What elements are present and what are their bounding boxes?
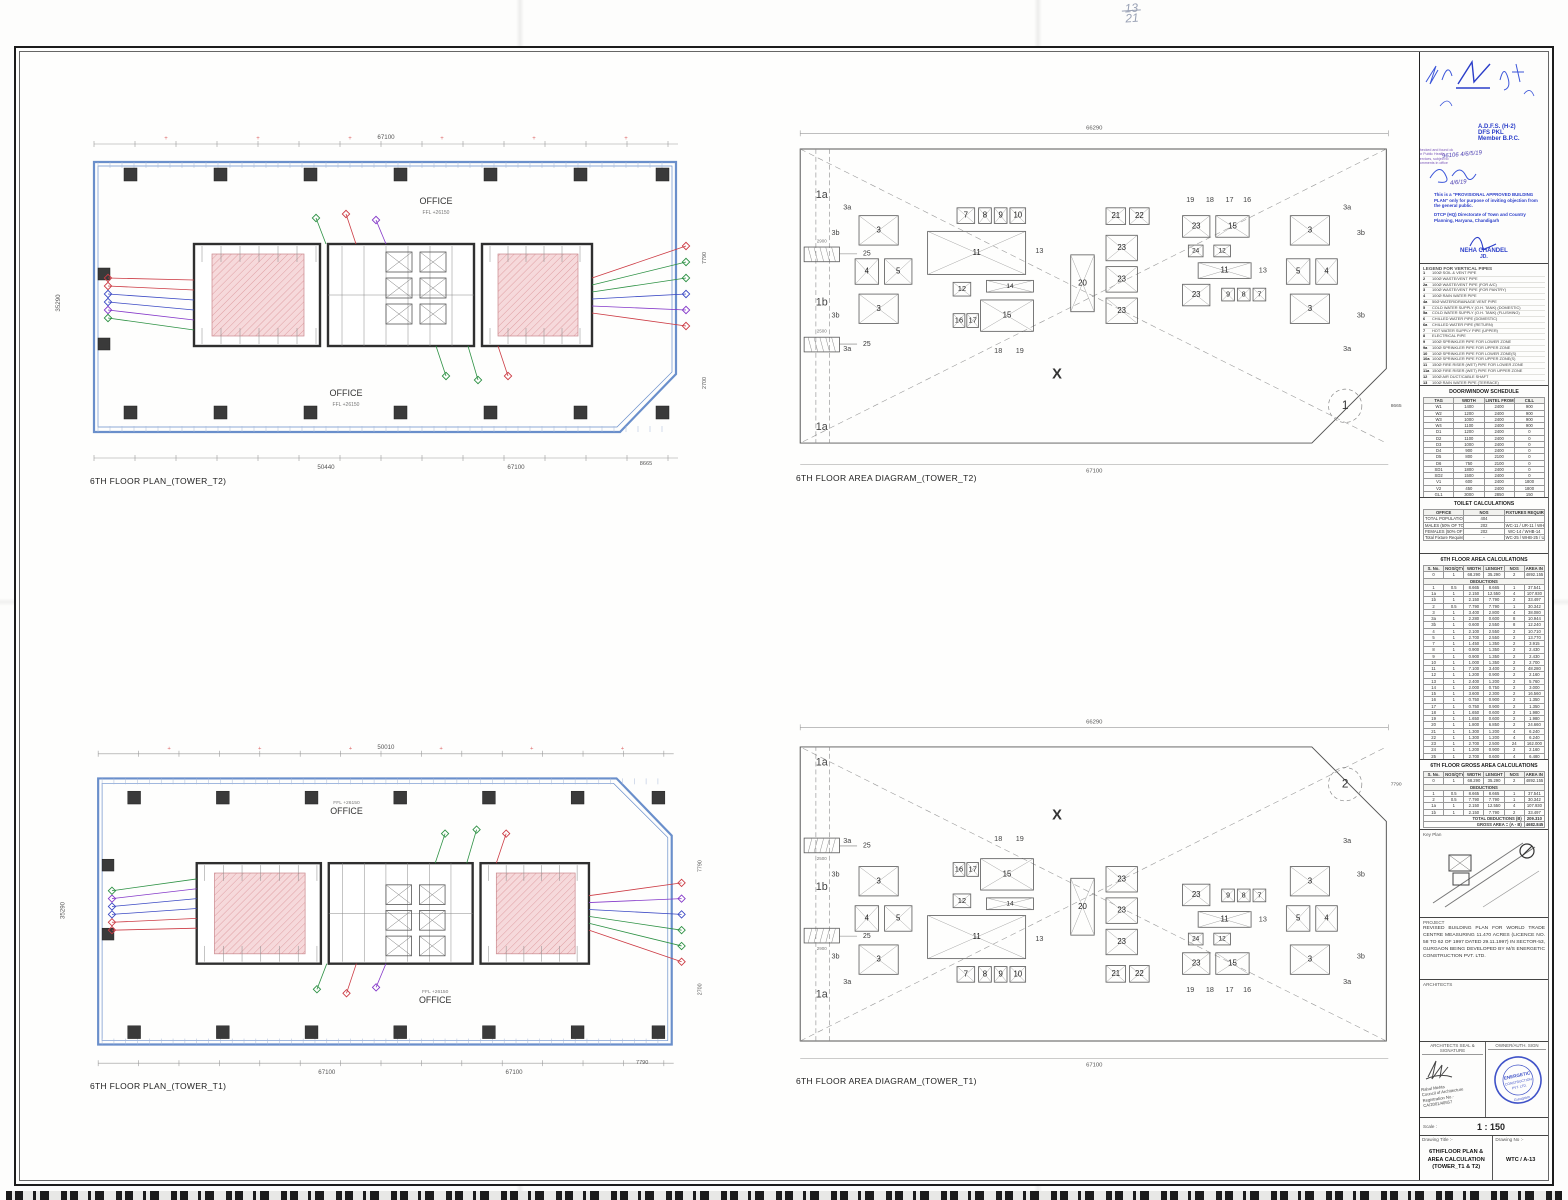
scanned-architectural-sheet: { "page": { "pencil_note_top": "13", "pe…	[0, 0, 1568, 1200]
title-block: A.D.F.S. (H-2) DFS PKL Member B.P.C. 961…	[1419, 52, 1548, 1180]
svg-text:67100: 67100	[1086, 468, 1103, 474]
key-plan-map	[1423, 837, 1541, 909]
svg-text:25: 25	[863, 843, 871, 850]
svg-text:X: X	[1052, 366, 1062, 382]
svg-text:7: 7	[1257, 892, 1261, 899]
svg-text:19: 19	[1016, 834, 1024, 843]
svg-text:11: 11	[973, 248, 981, 257]
svg-text:12: 12	[958, 896, 966, 905]
svg-text:67100: 67100	[377, 134, 395, 141]
approval-stamp-area: A.D.F.S. (H-2) DFS PKL Member B.P.C. 961…	[1420, 52, 1548, 264]
gross-area-calculations: 6TH FLOOR GROSS AREA CALCULATIONS S. No.…	[1420, 760, 1548, 830]
svg-text:7790: 7790	[697, 860, 703, 872]
owner-sign-cell: OWNER/AUTH. SIGN ENERGETIC CONSTRUCTION …	[1486, 1042, 1548, 1117]
legend-section: LEGEND FOR VERTICAL PIPES 1100Ø SOIL & V…	[1420, 264, 1548, 386]
svg-text:5: 5	[896, 267, 901, 276]
svg-text:19: 19	[1186, 195, 1194, 204]
officer-name-stamp: NEHA CHANDEL JD.	[1460, 248, 1508, 260]
svg-text:14: 14	[1006, 283, 1014, 290]
svg-text:FFL +26150: FFL +26150	[333, 402, 360, 408]
svg-text:1a: 1a	[816, 989, 828, 1001]
svg-text:OFFICE: OFFICE	[330, 806, 363, 816]
svg-text:12: 12	[1219, 936, 1227, 943]
svg-text:3b: 3b	[831, 311, 839, 320]
svg-text:8: 8	[1242, 892, 1246, 899]
svg-text:3a: 3a	[843, 977, 852, 986]
svg-text:5: 5	[1296, 914, 1301, 923]
svg-text:16: 16	[955, 864, 963, 873]
svg-text:24: 24	[1192, 936, 1200, 943]
svg-text:2500: 2500	[817, 856, 828, 861]
svg-text:35290: 35290	[55, 294, 62, 312]
scale-value: 1 : 150	[1437, 1122, 1545, 1132]
svg-text:+: +	[349, 746, 353, 752]
svg-text:+: +	[621, 746, 625, 752]
svg-text:15: 15	[1003, 869, 1012, 878]
owner-round-stamp: ENERGETIC CONSTRUCTION PVT. LTD. Gurugra…	[1490, 1050, 1546, 1106]
architect-signature	[1422, 1055, 1462, 1081]
svg-text:2: 2	[1342, 777, 1349, 790]
architect-seal-label: ARCHITECTS SEAL & SIGNATURE	[1422, 1043, 1483, 1055]
key-plan: Key Plan	[1420, 830, 1548, 918]
svg-text:66290: 66290	[1086, 125, 1103, 131]
svg-text:66290: 66290	[1086, 719, 1103, 725]
scan-edge-barcode	[6, 1191, 1562, 1200]
pencil-page-mark: 13 21	[1121, 2, 1142, 23]
svg-text:+: +	[440, 136, 444, 142]
svg-text:2900: 2900	[817, 946, 828, 951]
seal-signature-section: ARCHITECTS SEAL & SIGNATURE Rahul Mehta …	[1420, 1042, 1548, 1118]
svg-text:+: +	[258, 746, 262, 752]
svg-text:23: 23	[1117, 306, 1126, 315]
svg-text:10: 10	[1013, 969, 1022, 978]
svg-text:3a: 3a	[1343, 344, 1352, 353]
floor-plan-t2-label: 6TH FLOOR PLAN_(TOWER_T2)	[90, 476, 226, 486]
area-diagram-t1-label: 6TH FLOOR AREA DIAGRAM_(TOWER_T1)	[796, 1076, 977, 1086]
adfs-stamp: A.D.F.S. (H-2) DFS PKL Member B.P.C.	[1478, 124, 1520, 142]
svg-text:23: 23	[1192, 222, 1201, 231]
svg-text:+: +	[532, 136, 536, 142]
toilet-calc-table: OFFICENOSFIXTURES REQUIREDTOTAL POPULATI…	[1423, 509, 1545, 541]
officer-signature	[1464, 228, 1504, 250]
svg-text:19: 19	[1186, 985, 1194, 994]
svg-text:3a: 3a	[1343, 836, 1352, 845]
svg-text:X: X	[1052, 807, 1062, 823]
svg-text:9: 9	[1226, 892, 1230, 899]
svg-text:4: 4	[865, 914, 870, 923]
svg-text:1a: 1a	[816, 421, 828, 433]
svg-text:3b: 3b	[1357, 952, 1365, 961]
svg-text:OFFICE: OFFICE	[420, 196, 453, 206]
svg-text:1b: 1b	[816, 881, 828, 893]
svg-text:17: 17	[1225, 195, 1233, 204]
svg-text:20: 20	[1078, 278, 1087, 287]
svg-text:13: 13	[1035, 246, 1043, 255]
svg-text:16: 16	[1243, 985, 1251, 994]
toilet-calc-title: TOILET CALCULATIONS	[1423, 501, 1545, 507]
svg-text:2900: 2900	[817, 238, 828, 243]
svg-text:7790: 7790	[1391, 781, 1402, 787]
svg-text:1: 1	[1342, 399, 1349, 412]
svg-text:+: +	[530, 746, 534, 752]
svg-text:23: 23	[1192, 890, 1201, 899]
gross-calc-title: 6TH FLOOR GROSS AREA CALCULATIONS	[1423, 763, 1545, 769]
scale-section: Scale : 1 : 150	[1420, 1118, 1548, 1136]
svg-text:2700: 2700	[702, 377, 708, 389]
svg-text:7: 7	[964, 211, 968, 220]
svg-text:3b: 3b	[1357, 228, 1365, 237]
door-schedule-table: TAGWIDTHLINTEL FROM FFLCILLW114002400900…	[1423, 397, 1545, 498]
svg-text:3a: 3a	[1343, 203, 1352, 212]
svg-text:18: 18	[994, 834, 1002, 843]
dtcp-department: DTCP (HQ) Directorate of Town and Countr…	[1434, 212, 1538, 223]
svg-text:12: 12	[958, 284, 966, 293]
floor-plan-t1-label: 6TH FLOOR PLAN_(TOWER_T1)	[90, 1081, 226, 1091]
svg-text:3a: 3a	[1343, 977, 1352, 986]
svg-text:+: +	[167, 746, 171, 752]
project-description: REVISED BUILDING PLAN FOR WORLD TRADE CE…	[1423, 925, 1545, 961]
svg-text:+: +	[624, 136, 628, 142]
svg-text:FFL +26150: FFL +26150	[423, 210, 450, 216]
svg-text:18: 18	[994, 346, 1002, 355]
svg-text:FFL +26150: FFL +26150	[333, 800, 360, 806]
svg-text:23: 23	[1117, 243, 1126, 252]
svg-text:FFL +26150: FFL +26150	[422, 989, 449, 995]
svg-text:4: 4	[1324, 267, 1329, 276]
svg-text:9: 9	[998, 969, 1002, 978]
svg-text:+: +	[164, 136, 168, 142]
svg-text:25: 25	[863, 341, 871, 348]
svg-text:3: 3	[876, 304, 881, 313]
svg-text:24: 24	[1192, 248, 1200, 255]
svg-text:12: 12	[1219, 248, 1227, 255]
area-calculations: 6TH FLOOR AREA CALCULATIONS S. No.NOS/QT…	[1420, 554, 1548, 760]
area-diagram-t1-drawing: 6629067100277901a1b1a2529002525003453789…	[761, 714, 1403, 1070]
area-diagram-t2-label: 6TH FLOOR AREA DIAGRAM_(TOWER_T2)	[796, 473, 977, 483]
svg-text:1b: 1b	[816, 297, 828, 309]
svg-text:5: 5	[1296, 267, 1301, 276]
svg-text:8: 8	[983, 211, 988, 220]
svg-text:17: 17	[969, 864, 977, 873]
gross-calc-table: S. No.NOS/QTYWIDTHLENGHTNOSAREA IN SQMT0…	[1423, 771, 1545, 828]
svg-text:14: 14	[1006, 900, 1014, 907]
drawing-no-value: WTC / A-13	[1495, 1142, 1546, 1179]
toilet-calculations: TOILET CALCULATIONS OFFICENOSFIXTURES RE…	[1420, 498, 1548, 554]
svg-text:3a: 3a	[843, 344, 852, 353]
svg-text:25: 25	[863, 933, 871, 940]
door-schedule-title: DOOR/WINDOW SCHEDULE	[1423, 389, 1545, 395]
svg-text:20: 20	[1078, 902, 1087, 911]
svg-text:23: 23	[1192, 290, 1201, 299]
svg-text:35290: 35290	[60, 901, 67, 919]
svg-text:+: +	[348, 136, 352, 142]
svg-text:17: 17	[1225, 985, 1233, 994]
svg-text:7790: 7790	[702, 252, 708, 264]
svg-text:67100: 67100	[506, 1069, 524, 1076]
svg-text:22: 22	[1135, 211, 1144, 220]
svg-text:3b: 3b	[1357, 311, 1365, 320]
svg-text:18: 18	[1206, 985, 1214, 994]
svg-text:19: 19	[1016, 346, 1024, 355]
svg-text:16: 16	[1243, 195, 1251, 204]
svg-text:13: 13	[1259, 265, 1267, 274]
svg-text:1a: 1a	[816, 756, 828, 768]
svg-text:15: 15	[1228, 959, 1237, 968]
svg-text:3b: 3b	[1357, 869, 1365, 878]
svg-text:15: 15	[1003, 311, 1012, 320]
area-calc-title: 6TH FLOOR AREA CALCULATIONS	[1423, 557, 1545, 563]
svg-text:3b: 3b	[831, 869, 839, 878]
svg-text:OFFICE: OFFICE	[330, 388, 363, 398]
svg-text:50010: 50010	[377, 744, 395, 751]
svg-text:4: 4	[1324, 914, 1329, 923]
svg-text:23: 23	[1117, 937, 1126, 946]
svg-text:7790: 7790	[636, 1060, 648, 1066]
svg-text:3a: 3a	[843, 836, 852, 845]
door-window-schedule: DOOR/WINDOW SCHEDULE TAGWIDTHLINTEL FROM…	[1420, 386, 1548, 498]
project-section: PROJECT REVISED BUILDING PLAN FOR WORLD …	[1420, 918, 1548, 980]
svg-text:+: +	[439, 746, 443, 752]
architects-section: ARCHITECTS	[1420, 980, 1548, 1042]
svg-text:3b: 3b	[831, 952, 839, 961]
floor-plan-t1-drawing: ++++++50010671006710035290779027007790OF…	[46, 738, 716, 1078]
svg-text:67100: 67100	[1086, 1062, 1103, 1068]
svg-text:25: 25	[863, 251, 871, 258]
legend-list: 1100Ø SOIL & VENT PIPE2100Ø WASTE/VENT P…	[1423, 271, 1545, 386]
svg-text:17: 17	[969, 316, 977, 325]
svg-text:3: 3	[1308, 876, 1313, 885]
architect-seal-cell: ARCHITECTS SEAL & SIGNATURE Rahul Mehta …	[1420, 1042, 1486, 1117]
svg-text:4: 4	[865, 267, 870, 276]
drawing-title-value: 6TH/FLOOR PLAN & AREA CALCULATION (TOWER…	[1422, 1142, 1490, 1179]
svg-text:67100: 67100	[507, 464, 525, 471]
area-diagram-t2-drawing: 6629067100186651a1b1a2529002525003453789…	[761, 120, 1403, 476]
svg-text:8665: 8665	[640, 461, 652, 467]
svg-text:8: 8	[1242, 291, 1246, 298]
svg-text:3: 3	[1308, 225, 1313, 234]
scale-label: Scale :	[1423, 1124, 1437, 1129]
drawing-title-section: Drawing Title :- 6TH/FLOOR PLAN & AREA C…	[1420, 1136, 1548, 1180]
svg-text:18: 18	[1206, 195, 1214, 204]
architects-label: ARCHITECTS	[1423, 982, 1545, 987]
svg-text:1a: 1a	[816, 189, 828, 201]
svg-text:23: 23	[1192, 959, 1201, 968]
svg-text:21: 21	[1111, 211, 1120, 220]
svg-text:9: 9	[1226, 291, 1230, 298]
svg-text:3: 3	[876, 955, 881, 964]
signature-scribbles	[1420, 54, 1542, 124]
svg-text:OFFICE: OFFICE	[419, 995, 452, 1005]
svg-text:3: 3	[1308, 955, 1313, 964]
svg-text:3: 3	[876, 225, 881, 234]
svg-text:15: 15	[1228, 222, 1237, 231]
svg-text:11: 11	[1221, 266, 1229, 275]
svg-text:7: 7	[1257, 291, 1261, 298]
svg-text:10: 10	[1013, 211, 1022, 220]
svg-text:23: 23	[1117, 874, 1126, 883]
svg-text:67100: 67100	[318, 1069, 336, 1076]
floor-plan-t2-drawing: ++++++67100504406710035290779027008665OF…	[46, 128, 716, 478]
svg-text:13: 13	[1035, 934, 1043, 943]
svg-text:3b: 3b	[831, 228, 839, 237]
svg-text:3: 3	[1308, 304, 1313, 313]
architect-registration: Rahul Mehta Council of Architecture Regi…	[1421, 1079, 1484, 1109]
sheet-border-frame: ++++++67100504406710035290779027008665OF…	[14, 46, 1554, 1186]
svg-text:3: 3	[876, 876, 881, 885]
svg-text:13: 13	[1259, 914, 1267, 923]
svg-text:21: 21	[1111, 969, 1120, 978]
svg-text:5: 5	[896, 914, 901, 923]
svg-text:23: 23	[1117, 274, 1126, 283]
svg-text:23: 23	[1117, 906, 1126, 915]
area-calc-table: S. No.NOS/QTYWIDTHLENGHTNOSAREA IN SQMT0…	[1423, 565, 1545, 760]
owner-sign-label: OWNER/AUTH. SIGN	[1488, 1043, 1546, 1050]
svg-text:8665: 8665	[1391, 403, 1402, 409]
svg-text:2500: 2500	[817, 329, 828, 334]
svg-text:50440: 50440	[317, 464, 335, 471]
svg-text:8: 8	[983, 969, 988, 978]
provisional-approval-note: This is a "PROVISIONAL APPROVED BUILDING…	[1434, 192, 1538, 209]
svg-text:11: 11	[1221, 915, 1229, 924]
svg-text:7: 7	[964, 969, 968, 978]
svg-text:11: 11	[973, 932, 981, 941]
svg-text:3a: 3a	[843, 203, 852, 212]
svg-text:9: 9	[998, 211, 1002, 220]
svg-text:+: +	[256, 136, 260, 142]
svg-text:22: 22	[1135, 969, 1144, 978]
svg-text:2700: 2700	[697, 983, 703, 995]
svg-text:16: 16	[955, 316, 963, 325]
